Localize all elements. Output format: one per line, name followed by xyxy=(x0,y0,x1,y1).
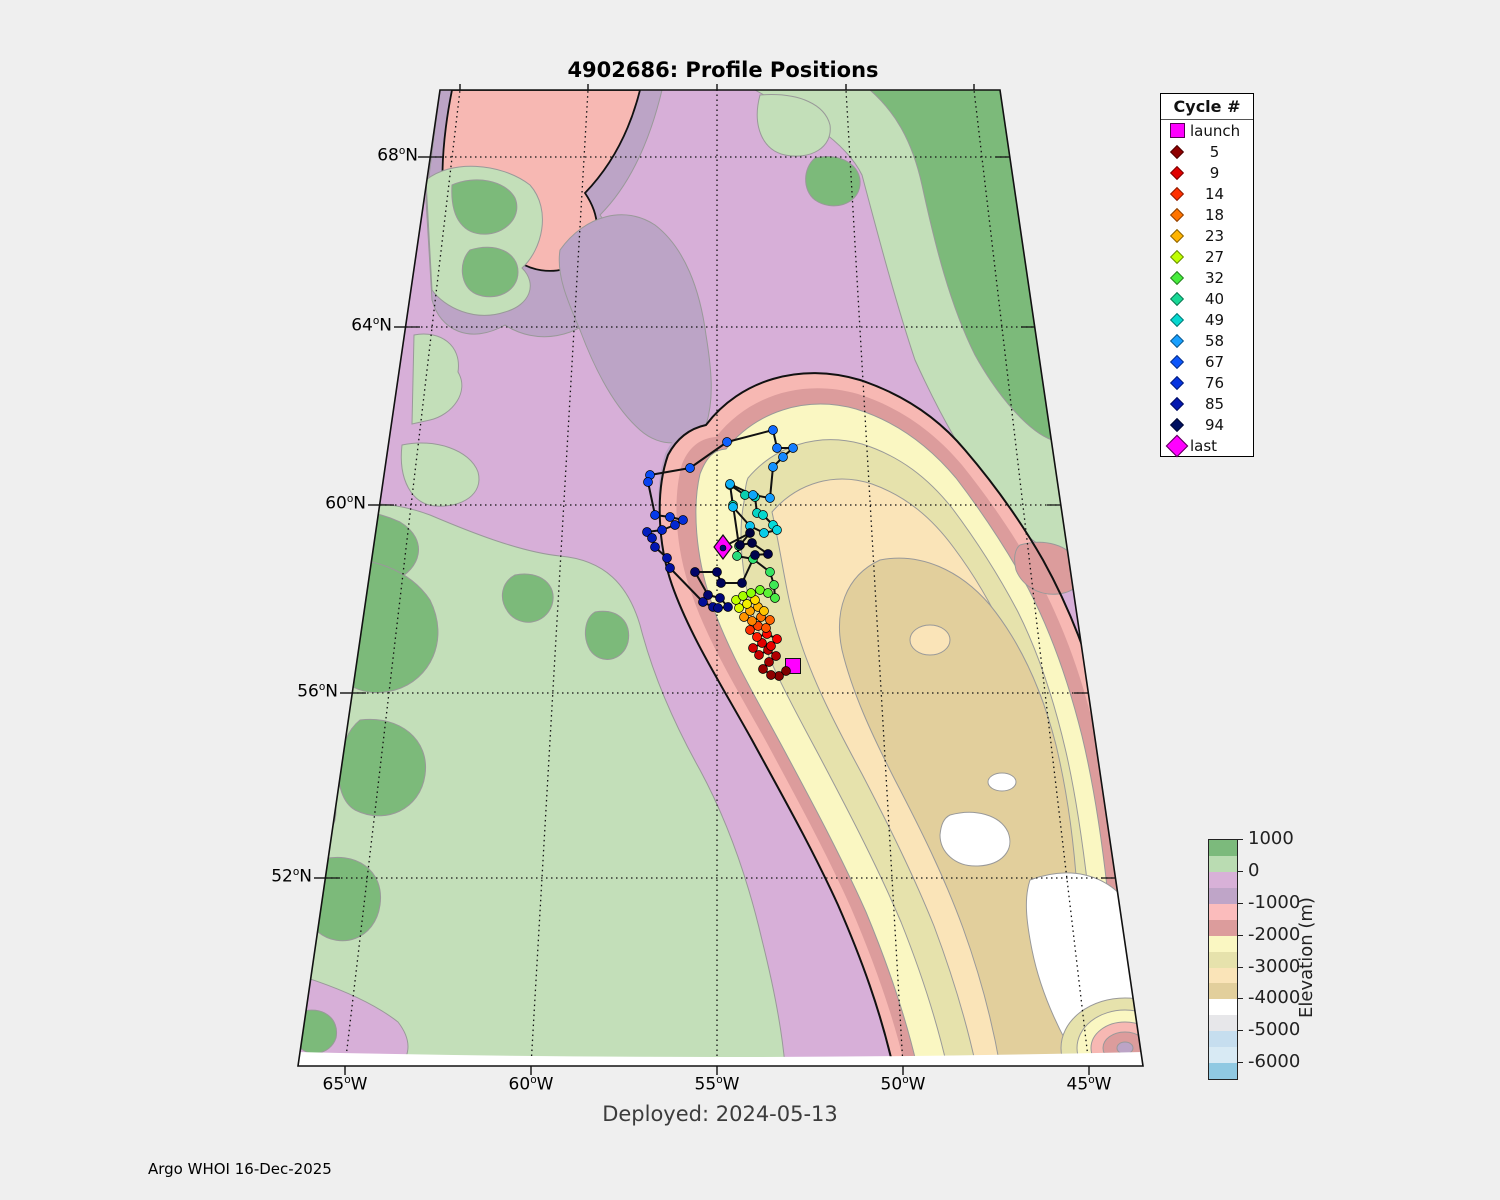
legend-item: 14 xyxy=(1161,183,1253,204)
lat-label-52n: 52oN xyxy=(242,866,312,887)
cycle-marker-icon xyxy=(1170,396,1184,410)
cbar-tick-m2000: -2000 xyxy=(1248,924,1300,945)
colorbar-axis-label: Elevation (m) xyxy=(1296,848,1326,1068)
cbar-tick-0: 0 xyxy=(1248,860,1259,881)
cycle-marker-icon xyxy=(1170,207,1184,221)
lon-label-50w: 50oW xyxy=(858,1074,948,1095)
cycle-marker-icon xyxy=(1170,228,1184,242)
credit-label: Argo WHOI 16-Dec-2025 xyxy=(148,1160,332,1178)
cycle-marker-icon xyxy=(1170,312,1184,326)
legend-item: 94 xyxy=(1161,414,1253,435)
cycle-marker-icon xyxy=(1170,165,1184,179)
cycle-legend: Cycle # launch 5 9 14 18 23 27 32 40 49 xyxy=(1160,93,1254,457)
elevation-colorbar xyxy=(1208,839,1238,1080)
cbar-tick-1000: 1000 xyxy=(1248,828,1294,849)
legend-item: 49 xyxy=(1161,309,1253,330)
legend-item: 32 xyxy=(1161,267,1253,288)
legend-item: 40 xyxy=(1161,288,1253,309)
lon-label-60w: 60oW xyxy=(486,1074,576,1095)
cbar-tick-m5000: -5000 xyxy=(1248,1019,1300,1040)
legend-title: Cycle # xyxy=(1161,94,1253,120)
lat-label-56n: 56oN xyxy=(268,681,338,702)
cycle-marker-icon xyxy=(1170,333,1184,347)
lon-label-45w: 45oW xyxy=(1044,1074,1134,1095)
cbar-tick-m4000: -4000 xyxy=(1248,987,1300,1008)
deployed-date-label: Deployed: 2024-05-13 xyxy=(420,1102,1020,1126)
cbar-tick-m1000: -1000 xyxy=(1248,892,1300,913)
legend-item: 58 xyxy=(1161,330,1253,351)
lat-label-64n: 64oN xyxy=(322,315,392,336)
cycle-marker-icon xyxy=(1170,291,1184,305)
lat-label-60n: 60oN xyxy=(296,493,366,514)
cbar-tick-m6000: -6000 xyxy=(1248,1051,1300,1072)
map-area xyxy=(250,80,1210,1098)
legend-item: 85 xyxy=(1161,393,1253,414)
legend-item-launch: launch xyxy=(1161,120,1253,141)
legend-item: 27 xyxy=(1161,246,1253,267)
cycle-marker-icon xyxy=(1170,270,1184,284)
cycle-marker-icon xyxy=(1170,375,1184,389)
legend-item: 18 xyxy=(1161,204,1253,225)
lat-label-68n: 68oN xyxy=(348,145,418,166)
last-marker-icon xyxy=(1166,434,1189,457)
cycle-marker-icon xyxy=(1170,249,1184,263)
cycle-marker-icon xyxy=(1170,354,1184,368)
lon-label-65w: 65oW xyxy=(300,1074,390,1095)
legend-item: 5 xyxy=(1161,141,1253,162)
cycle-marker-icon xyxy=(1170,144,1184,158)
legend-item-last: last xyxy=(1161,435,1253,456)
page-title: 4902686: Profile Positions xyxy=(423,58,1023,82)
cbar-tick-m3000: -3000 xyxy=(1248,956,1300,977)
cycle-marker-icon xyxy=(1170,186,1184,200)
cycle-marker-icon xyxy=(1170,417,1184,431)
legend-item: 23 xyxy=(1161,225,1253,246)
legend-item: 76 xyxy=(1161,372,1253,393)
legend-item: 9 xyxy=(1161,162,1253,183)
launch-marker-icon xyxy=(1170,123,1185,138)
legend-item: 67 xyxy=(1161,351,1253,372)
lon-label-55w: 55oW xyxy=(672,1074,762,1095)
